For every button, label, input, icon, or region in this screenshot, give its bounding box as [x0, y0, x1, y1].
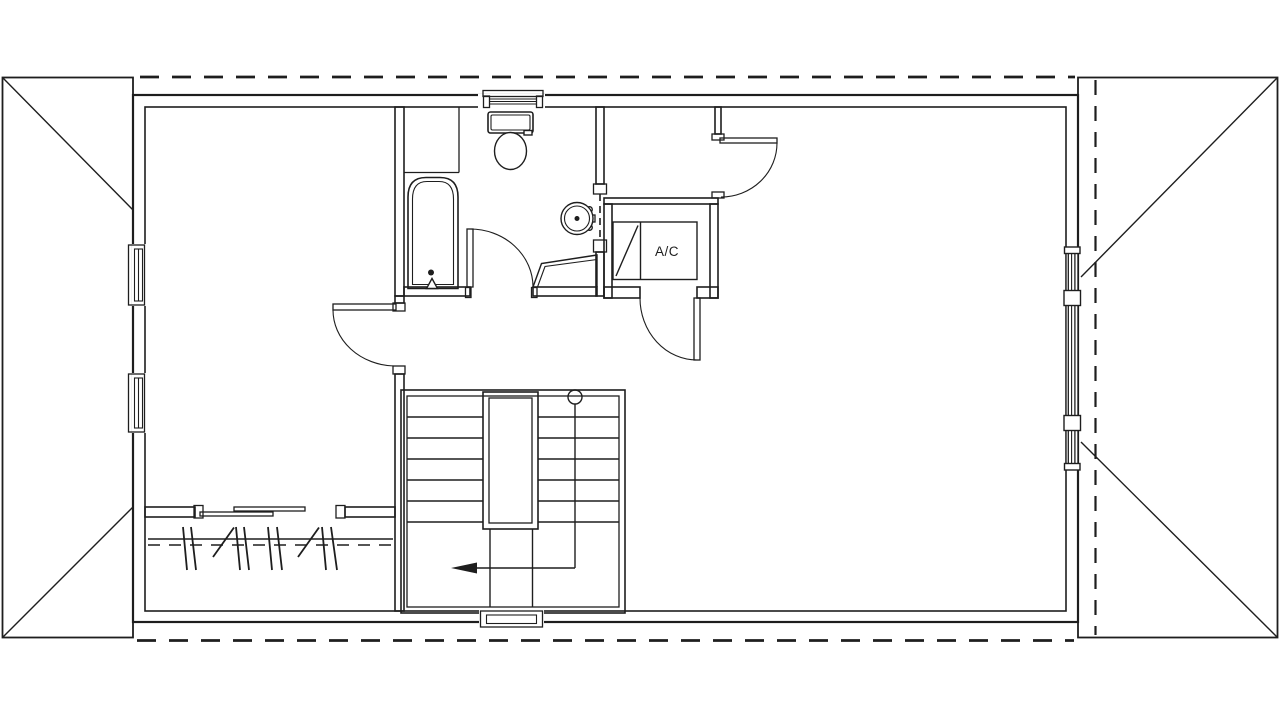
- left-gable-hip-bottom: [3, 507, 134, 638]
- right-window-mullion-lower: [1064, 416, 1081, 431]
- right-window-mullion-upper: [1064, 291, 1081, 306]
- bathtub-inner: [413, 182, 454, 285]
- right-gable-hip-top: [1081, 78, 1278, 278]
- left-gable-hip-top: [3, 78, 134, 211]
- hall-and-ac-closet: A/C: [604, 107, 777, 360]
- exterior-wall-outer: [133, 95, 1078, 622]
- closet-right-wall: [395, 374, 404, 611]
- roof-overhang-lines: [137, 77, 1075, 641]
- stairwell: [401, 390, 625, 613]
- right-window-cap-top: [1065, 247, 1081, 254]
- ac-closet-bottom-wall-right: [697, 287, 718, 298]
- hall-bedroom-wall: [715, 107, 721, 134]
- bottom-window-opening: [479, 610, 544, 624]
- pocket-door-jamb-top: [594, 184, 607, 194]
- stair-newel-outer: [483, 392, 538, 529]
- closet-front-wall-left: [145, 507, 195, 517]
- ac-unit-diagonal: [616, 226, 638, 277]
- ac-closet-door-panel: [694, 298, 700, 360]
- bathroom-bottom-wall-right: [533, 287, 597, 296]
- stair-treads-left: [407, 417, 483, 522]
- left-gable: [3, 78, 134, 638]
- floor-plan-page: A/C: [0, 0, 1280, 720]
- ac-closet-door-swing-arc: [640, 298, 697, 360]
- stair-treads-right: [538, 417, 619, 522]
- hall-bottom-wall: [604, 198, 718, 204]
- ac-closet-left-wall: [604, 204, 612, 298]
- bedroom-door-jamb-top: [712, 134, 724, 140]
- bathtub-drain: [428, 270, 434, 276]
- ac-unit-label: A/C: [655, 244, 679, 259]
- bathroom: [395, 107, 607, 298]
- left-gable-outline: [3, 78, 134, 638]
- right-gable-hip-bottom: [1081, 442, 1278, 638]
- corner-bench-outer: [533, 255, 597, 287]
- sink-drain: [575, 216, 580, 221]
- toilet-flush-valve: [524, 131, 532, 136]
- bathroom-door-panel: [467, 229, 473, 287]
- closet: [145, 296, 404, 611]
- stair-direction-arrowhead-icon: [451, 563, 477, 574]
- ac-closet-right-wall: [710, 204, 718, 298]
- right-gable-outline: [1078, 78, 1278, 638]
- closet-hanger-slashes: [213, 528, 319, 558]
- bathroom-right-wall-upper: [596, 107, 604, 184]
- stair-start-circle-marker: [568, 390, 582, 404]
- sliding-door-panel-rear: [234, 507, 305, 511]
- left-bedroom-door-jamb-bottom: [393, 366, 405, 374]
- right-window-cap-bottom: [1065, 464, 1081, 471]
- bedroom-door-swing-arc: [721, 143, 777, 197]
- corner-bench-inner: [538, 260, 598, 288]
- right-gable: [1078, 78, 1278, 638]
- ac-closet-bottom-wall-left: [604, 287, 640, 298]
- exterior-wall-inner: [145, 107, 1066, 611]
- bedroom-door-panel: [720, 138, 777, 143]
- bathroom-left-wall: [395, 107, 404, 296]
- floor-plan-canvas: A/C: [0, 0, 1280, 720]
- closet-front-wall-right: [345, 507, 395, 517]
- left-bedroom-door-swing-arc: [333, 310, 394, 366]
- bathroom-door-swing-arc: [470, 229, 533, 287]
- left-bedroom-door: [333, 303, 405, 374]
- exterior-walls: [133, 95, 1078, 622]
- closet-right-wall-stub: [395, 296, 404, 303]
- sliding-door-panel-front: [200, 512, 273, 516]
- closet-opening-jamb-right: [336, 506, 345, 519]
- toilet-tank-inner: [491, 115, 530, 130]
- stair-newel-inner: [489, 398, 532, 523]
- toilet-bowl: [495, 133, 527, 170]
- left-bedroom-door-panel: [333, 304, 396, 310]
- bathtub-faucet: [427, 279, 438, 289]
